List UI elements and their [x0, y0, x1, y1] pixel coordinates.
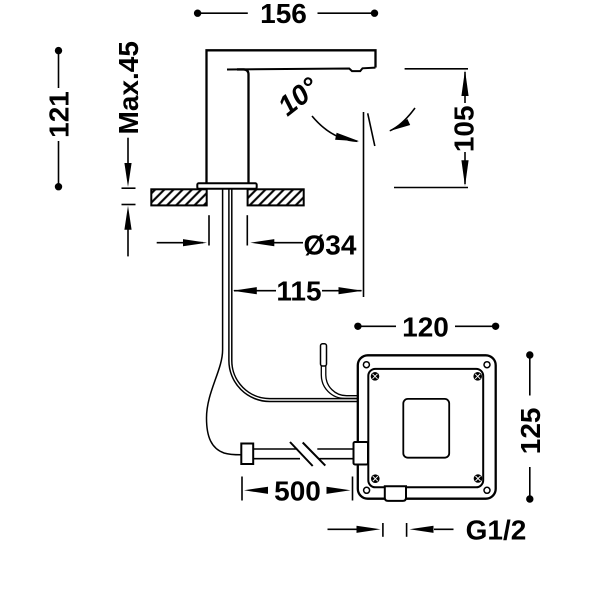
svg-text:115: 115 — [276, 276, 321, 307]
svg-text:105: 105 — [449, 105, 480, 152]
svg-text:125: 125 — [515, 408, 546, 455]
svg-text:Ø34: Ø34 — [304, 230, 357, 261]
svg-text:500: 500 — [274, 475, 321, 506]
svg-text:Max.45: Max.45 — [113, 41, 144, 134]
svg-text:121: 121 — [44, 91, 75, 138]
svg-text:G1/2: G1/2 — [466, 514, 527, 545]
svg-text:156: 156 — [260, 0, 307, 29]
svg-text:120: 120 — [402, 311, 449, 342]
